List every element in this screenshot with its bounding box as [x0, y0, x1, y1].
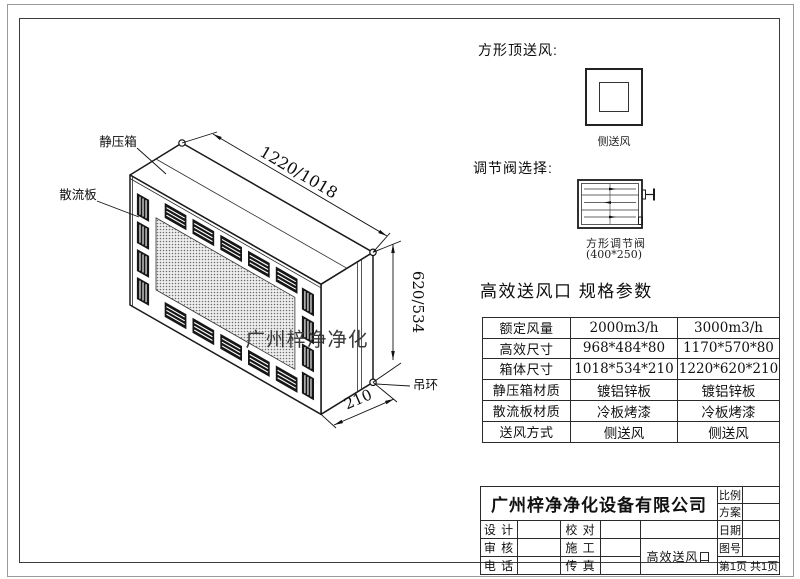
spec-row: 额定风量 2000m3/h 3000m3/h	[483, 318, 780, 339]
spec-value: 镀铝锌板	[678, 379, 780, 400]
audit-label: 审 核	[481, 539, 518, 557]
design-label: 设 计	[481, 521, 518, 539]
valve-diagram	[575, 178, 660, 234]
ring-label: 吊环	[413, 378, 438, 392]
valve-heading: 调节阀选择:	[473, 158, 553, 178]
plan-value	[743, 504, 780, 521]
spec-value: 侧送风	[571, 421, 678, 442]
spec-value: 侧送风	[678, 421, 780, 442]
top-supply-diagram	[585, 68, 643, 126]
top-supply-diagram-inner-square	[599, 82, 629, 112]
spec-value: 2000m3/h	[571, 318, 678, 339]
spec-value: 冷板烤漆	[571, 400, 678, 421]
dwg-no-value	[743, 539, 780, 557]
spec-label: 高效尺寸	[483, 338, 571, 359]
proof-value	[601, 521, 641, 539]
spec-row: 静压箱材质 镀铝锌板 镀铝锌板	[483, 379, 780, 400]
phone-value	[518, 557, 561, 575]
phone-label: 电 话	[481, 557, 518, 575]
spec-value: 3000m3/h	[678, 318, 780, 339]
dwg-no-label: 图号	[718, 539, 743, 557]
isometric-box-drawing: 1220/1018 620/534 210 静压箱	[0, 0, 470, 470]
scale-value	[743, 487, 780, 504]
plenum-label: 静压箱	[99, 134, 137, 149]
dim-height-text: 620/534	[409, 271, 427, 333]
spec-value: 1018*534*210	[571, 359, 678, 380]
plan-label: 方案	[718, 504, 743, 521]
spec-label: 散流板材质	[483, 400, 571, 421]
spec-value: 镀铝锌板	[571, 379, 678, 400]
spec-label: 送风方式	[483, 421, 571, 442]
fax-value	[601, 557, 641, 575]
spec-row: 高效尺寸 968*484*80 1170*570*80	[483, 338, 780, 359]
spec-row: 送风方式 侧送风 侧送风	[483, 421, 780, 442]
construct-value	[601, 539, 641, 557]
spare-cell	[641, 521, 718, 539]
proof-label: 校 对	[561, 521, 601, 539]
fax-label: 传 真	[561, 557, 601, 575]
valve-size: (400*250)	[586, 248, 642, 261]
top-supply-heading: 方形顶送风:	[478, 40, 558, 60]
audit-value	[518, 539, 561, 557]
date-value	[743, 521, 780, 539]
spec-value: 968*484*80	[571, 338, 678, 359]
design-value	[518, 521, 561, 539]
spec-value: 1220*620*210	[678, 359, 780, 380]
spec-value: 1170*570*80	[678, 338, 780, 359]
spec-row: 箱体尺寸 1018*534*210 1220*620*210	[483, 359, 780, 380]
dim-height-lines	[373, 241, 401, 382]
spec-value: 冷板烤漆	[678, 400, 780, 421]
spec-table: 额定风量 2000m3/h 3000m3/h 高效尺寸 968*484*80 1…	[482, 317, 780, 443]
watermark: 广州梓净净化	[245, 329, 368, 351]
title-block: 广州梓净净化设备有限公司 比例 方案 设 计 校 对 日期 审 核 施 工	[480, 486, 780, 575]
company-name: 广州梓净净化设备有限公司	[481, 487, 718, 521]
date-label: 日期	[718, 521, 743, 539]
top-supply-caption: 侧送风	[585, 133, 643, 149]
spec-label: 箱体尺寸	[483, 359, 571, 380]
spec-label: 静压箱材质	[483, 379, 571, 400]
spec-heading: 高效送风口 规格参数	[480, 277, 653, 302]
product-name: 高效送风口	[641, 539, 718, 575]
construct-label: 施 工	[561, 539, 601, 557]
scale-label: 比例	[718, 487, 743, 504]
spec-label: 额定风量	[483, 318, 571, 339]
page-info: 第1页 共1页	[718, 557, 780, 575]
diffuser-label: 散流板	[59, 187, 97, 202]
spec-row: 散流板材质 冷板烤漆 冷板烤漆	[483, 400, 780, 421]
drawing-sheet: 1220/1018 620/534 210 静压箱	[0, 0, 800, 579]
